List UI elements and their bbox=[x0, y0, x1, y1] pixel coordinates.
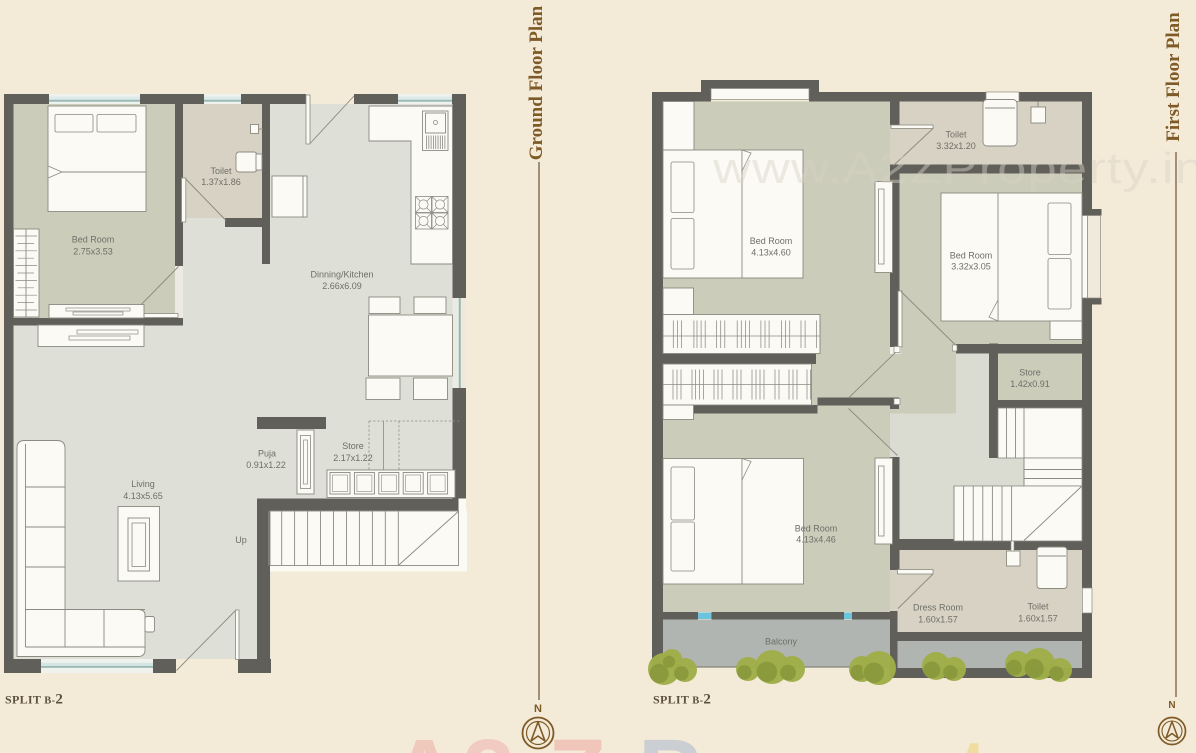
svg-text:y: y bbox=[1000, 720, 1053, 753]
svg-text:4.13x4.46: 4.13x4.46 bbox=[796, 535, 836, 545]
svg-text:Bed Room: Bed Room bbox=[750, 236, 793, 246]
svg-text:Puja: Puja bbox=[258, 449, 276, 459]
svg-text:1.37x1.86: 1.37x1.86 bbox=[201, 177, 241, 187]
svg-text:3.32x3.05: 3.32x3.05 bbox=[951, 262, 991, 272]
svg-text:Toilet: Toilet bbox=[1027, 602, 1049, 612]
svg-text:Bed Room: Bed Room bbox=[795, 524, 838, 534]
svg-text:o: o bbox=[756, 720, 814, 753]
svg-text:Living: Living bbox=[131, 479, 155, 489]
svg-text:First Floor Plan: First Floor Plan bbox=[1163, 12, 1184, 142]
svg-text:Bed Room: Bed Room bbox=[72, 235, 115, 245]
svg-text:0.91x1.22: 0.91x1.22 bbox=[246, 460, 286, 470]
svg-text:www.A2ZProperty.in: www.A2ZProperty.in bbox=[712, 144, 1196, 193]
svg-text:A: A bbox=[390, 720, 459, 753]
svg-text:Bed Room: Bed Room bbox=[950, 251, 993, 261]
svg-text:Up: Up bbox=[235, 535, 247, 545]
svg-text:2.66x6.09: 2.66x6.09 bbox=[322, 281, 362, 291]
svg-text:Z: Z bbox=[548, 720, 606, 753]
svg-text:Dress Room: Dress Room bbox=[913, 603, 963, 613]
svg-text:Store: Store bbox=[1019, 368, 1041, 378]
svg-text:p: p bbox=[812, 720, 870, 753]
svg-text:r: r bbox=[712, 720, 749, 753]
svg-text:r: r bbox=[922, 720, 959, 753]
svg-text:Toilet: Toilet bbox=[945, 130, 967, 140]
svg-text:P: P bbox=[638, 720, 701, 753]
svg-text:SPLIT B-2: SPLIT B-2 bbox=[653, 692, 711, 708]
svg-text:Balcony: Balcony bbox=[765, 637, 798, 647]
svg-text:N: N bbox=[1168, 700, 1175, 711]
svg-text:4.13x4.60: 4.13x4.60 bbox=[751, 248, 791, 258]
svg-text:2.17x1.22: 2.17x1.22 bbox=[333, 453, 373, 463]
svg-text:2: 2 bbox=[462, 720, 515, 753]
svg-text:Ground Floor Plan: Ground Floor Plan bbox=[526, 5, 547, 160]
svg-text:Store: Store bbox=[342, 441, 364, 451]
svg-text:t: t bbox=[958, 720, 990, 753]
svg-text:1.60x1.57: 1.60x1.57 bbox=[918, 615, 958, 625]
svg-text:2.75x3.53: 2.75x3.53 bbox=[73, 247, 113, 257]
svg-text:SPLIT B-2: SPLIT B-2 bbox=[5, 692, 63, 708]
svg-text:4.13x5.65: 4.13x5.65 bbox=[123, 491, 163, 501]
svg-text:Dinning/Kitchen: Dinning/Kitchen bbox=[310, 270, 373, 280]
svg-text:1.60x1.57: 1.60x1.57 bbox=[1018, 614, 1058, 624]
svg-text:N: N bbox=[534, 703, 542, 715]
svg-text:Toilet: Toilet bbox=[210, 166, 232, 176]
svg-text:e: e bbox=[866, 720, 919, 753]
svg-text:1.42x0.91: 1.42x0.91 bbox=[1010, 379, 1050, 389]
